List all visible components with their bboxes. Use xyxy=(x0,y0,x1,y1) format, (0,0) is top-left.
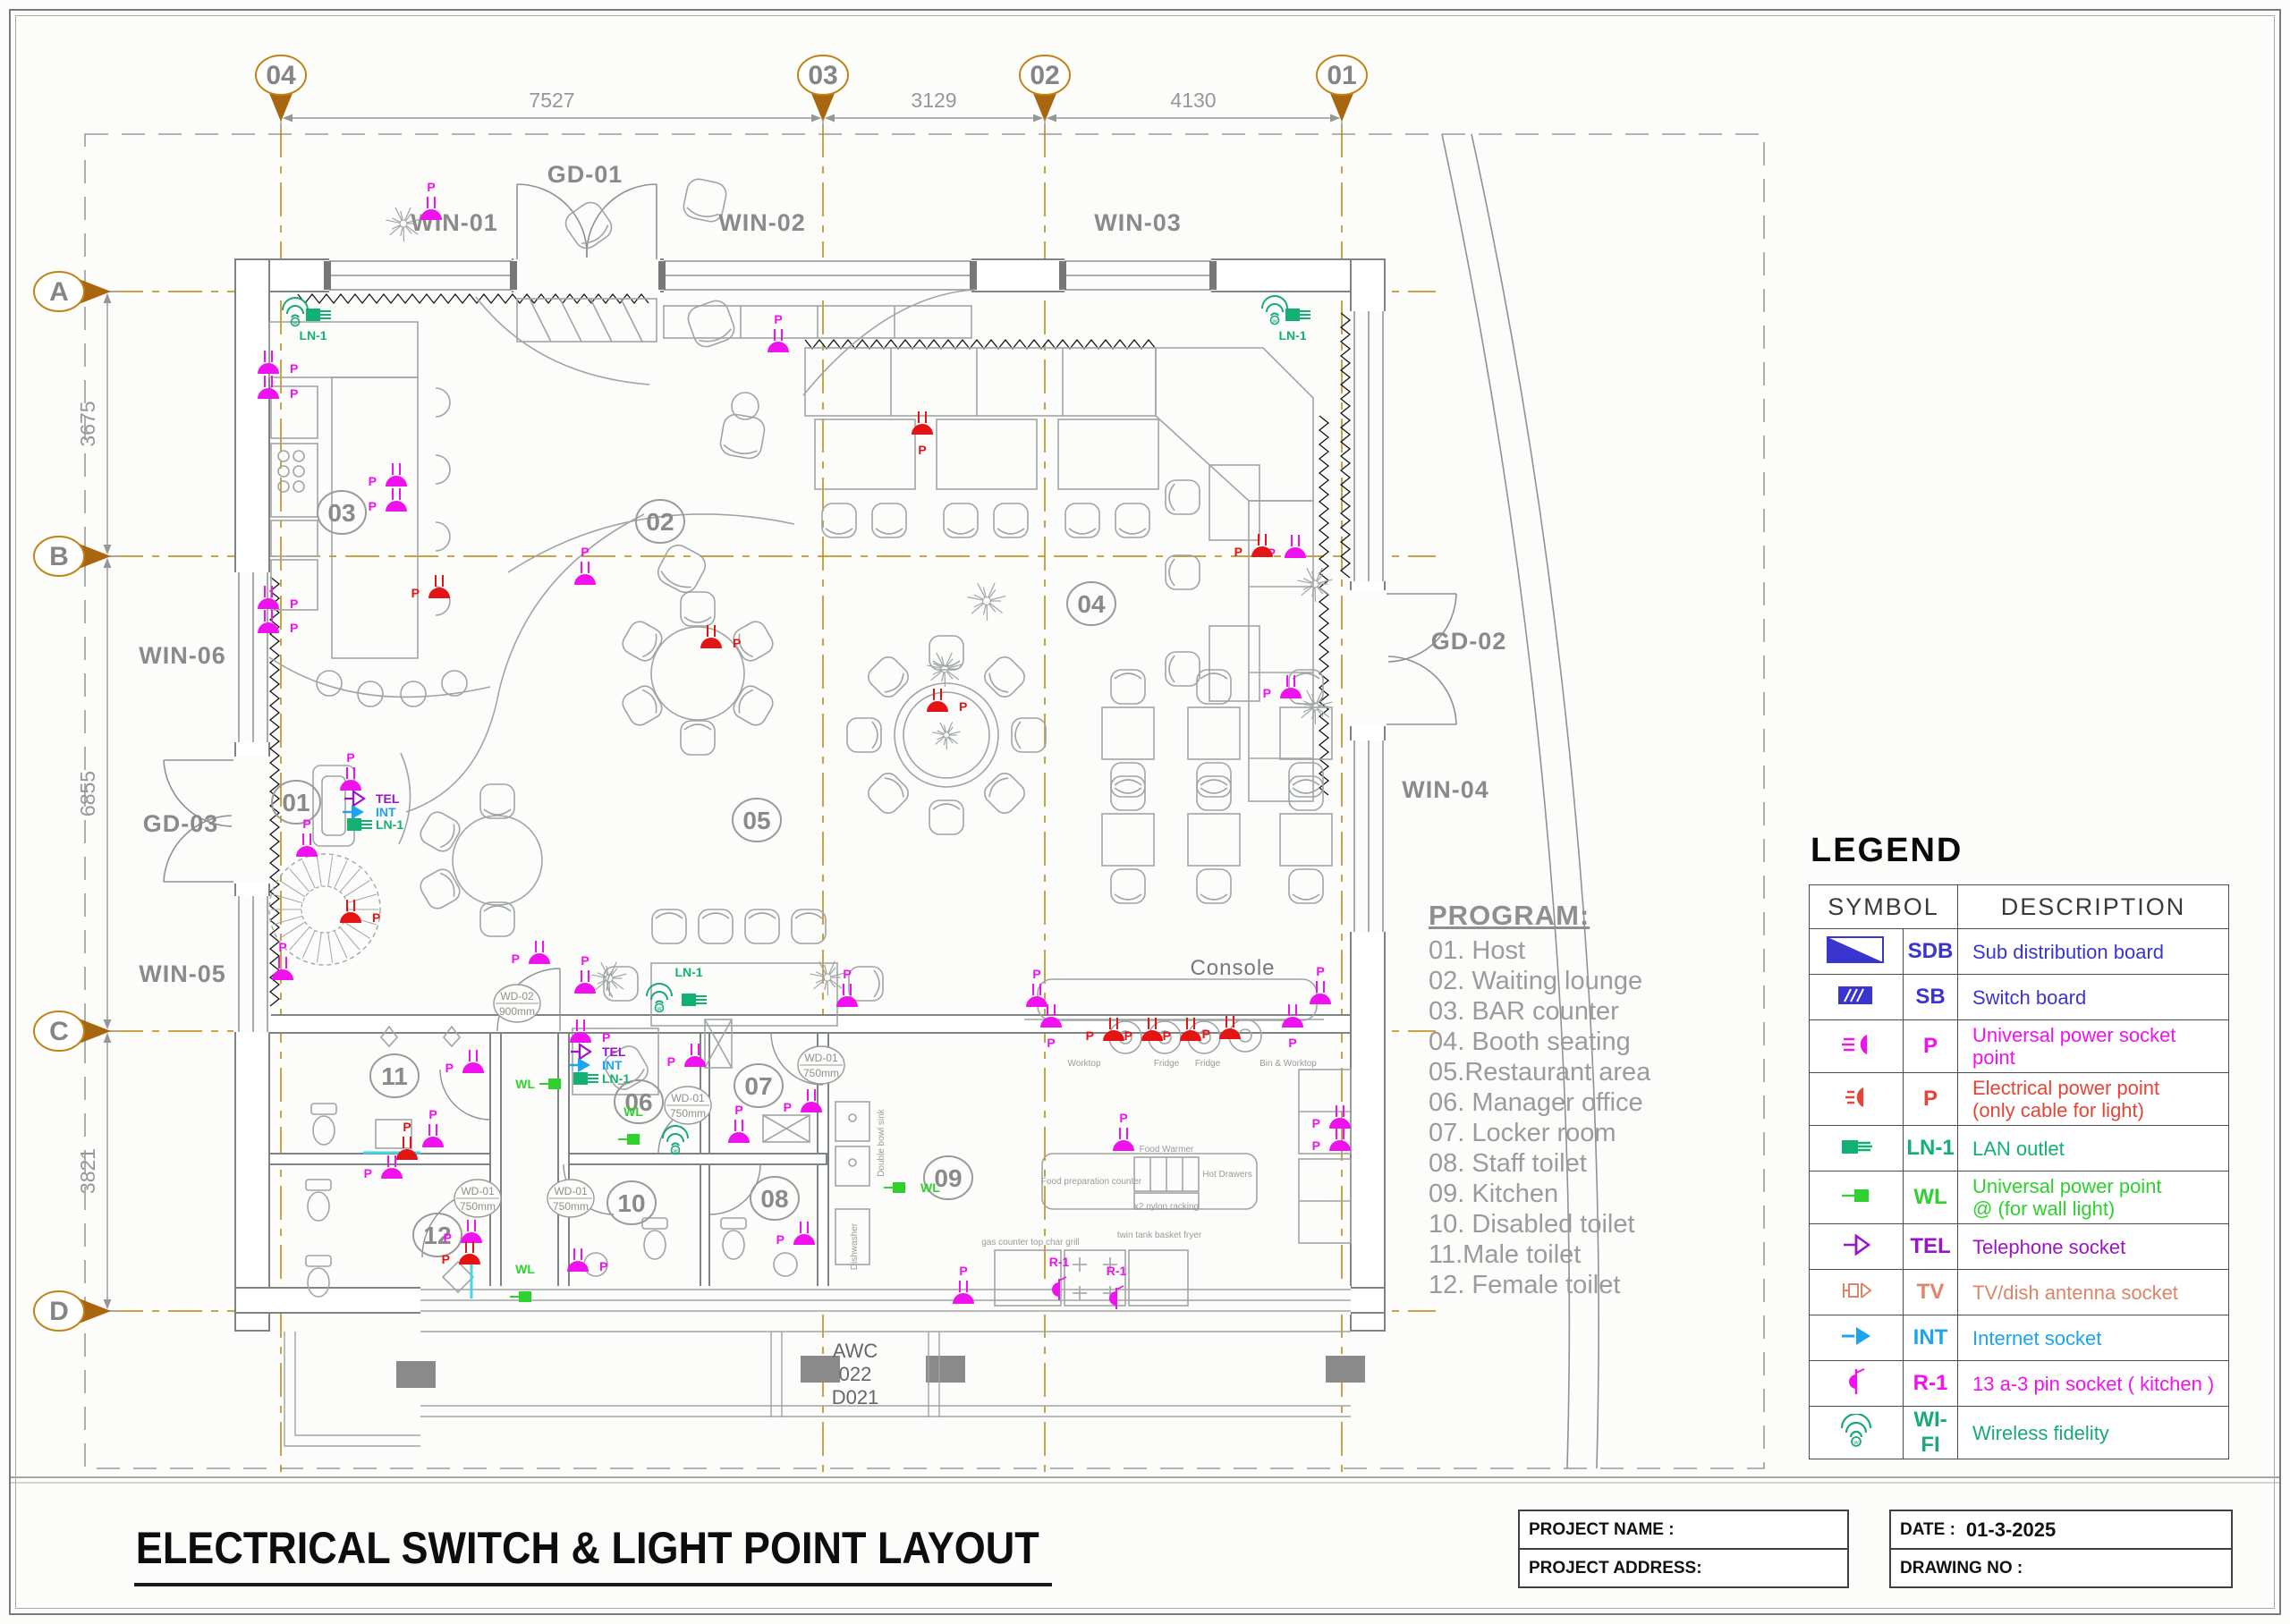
path xyxy=(795,913,822,918)
symbol-label: LN-1 xyxy=(1278,328,1306,343)
symbol-label: WL xyxy=(515,1262,535,1276)
chair xyxy=(1166,555,1200,589)
equipment-label: Double bowl sink xyxy=(877,1108,886,1177)
path xyxy=(702,913,729,918)
path xyxy=(1115,894,1141,900)
furniture-rect xyxy=(937,419,1037,489)
legend-row-sb: SBSwitch board xyxy=(1810,975,2229,1020)
path xyxy=(793,1234,815,1245)
window-post xyxy=(324,261,331,290)
rect xyxy=(872,503,906,537)
furniture-circle xyxy=(401,681,426,706)
dim-text-left: 3675 xyxy=(76,401,99,446)
chair xyxy=(417,866,463,912)
symbol-pr: P xyxy=(396,1120,418,1160)
column xyxy=(1326,1356,1365,1383)
symbol-p: P xyxy=(445,1050,484,1075)
furniture-rect xyxy=(1209,465,1259,540)
door-tag-code: WD-01 xyxy=(554,1185,588,1197)
symbol-label: P xyxy=(411,586,420,600)
symbol-label: P xyxy=(364,1166,372,1180)
line xyxy=(825,981,827,991)
symbol-p: P xyxy=(296,816,318,857)
toilet xyxy=(721,1218,746,1259)
symbol-ln: LN-1 xyxy=(674,965,707,1006)
path xyxy=(1329,1140,1351,1151)
symbol-p: P xyxy=(422,1107,444,1147)
symbol-label: P xyxy=(667,1054,675,1069)
grid-marker-label: A xyxy=(49,277,69,307)
chair xyxy=(1012,718,1046,752)
svg-text:w: w xyxy=(1853,1440,1859,1446)
equipment-label: Worktop xyxy=(1067,1059,1100,1069)
chair xyxy=(792,909,826,943)
symbol-label: P xyxy=(602,1030,610,1045)
wall xyxy=(558,1033,569,1288)
legend-heading: LEGEND xyxy=(1811,832,2231,870)
line xyxy=(1318,586,1329,595)
rect xyxy=(1111,670,1145,704)
grid-marker-label: 04 xyxy=(266,61,296,90)
entrance xyxy=(284,1332,1365,1446)
legend-description: Electrical power point(only cable for li… xyxy=(1958,1073,2229,1126)
legend-code: P xyxy=(1904,1020,1958,1073)
symbol-label: P xyxy=(784,1100,792,1114)
path xyxy=(1200,780,1227,785)
furniture-circle xyxy=(293,466,304,477)
symbol-label: P xyxy=(1047,1036,1055,1050)
symbol-wl: WL xyxy=(618,1104,643,1145)
legend-row-int: INTInternet socket xyxy=(1810,1315,2229,1361)
furniture-circle xyxy=(293,451,304,461)
rect xyxy=(1166,555,1200,589)
line xyxy=(302,860,315,888)
chair xyxy=(1197,869,1231,903)
chair xyxy=(730,682,776,729)
path xyxy=(872,722,878,749)
symbol-p: P xyxy=(574,953,596,994)
window-post xyxy=(1209,261,1217,290)
symbol-label: WL xyxy=(623,1104,643,1119)
path xyxy=(667,1134,683,1142)
rect xyxy=(1111,869,1145,903)
symbol-label: P xyxy=(734,1103,742,1117)
symbol-label: P xyxy=(290,621,298,635)
room-number-11: 11 xyxy=(381,1062,408,1090)
rect xyxy=(929,800,963,834)
symbol-label: P xyxy=(581,953,589,968)
rect xyxy=(1065,503,1099,537)
path xyxy=(1069,529,1096,534)
symbol-int: INT xyxy=(343,805,396,819)
legend-description: Wireless fidelity xyxy=(1958,1407,2229,1459)
furniture-rect xyxy=(517,299,657,342)
symbol-p: P xyxy=(1113,1111,1134,1151)
plant xyxy=(932,722,960,749)
path xyxy=(381,1168,403,1179)
symbol-p: P xyxy=(776,1222,815,1247)
rect xyxy=(519,1291,531,1302)
furniture-rect xyxy=(1280,814,1332,866)
wall xyxy=(269,1015,1351,1033)
grid-marker-label: D xyxy=(49,1297,69,1326)
furniture-path xyxy=(1156,348,1313,501)
drawing-no-label: DRAWING NO : xyxy=(1900,1559,2023,1578)
symbol-pr: P xyxy=(340,900,380,925)
symbol-label: P xyxy=(1312,1138,1320,1153)
rect xyxy=(745,909,779,943)
legend-symbol-tv-icon xyxy=(1810,1270,1904,1315)
symbol-label: P xyxy=(1316,964,1324,978)
symbol-label: P xyxy=(1288,1036,1296,1050)
legend-header-symbol: SYMBOL xyxy=(1810,885,1958,929)
symbol-label: P xyxy=(1086,1028,1094,1043)
console-label: Console xyxy=(1190,956,1275,980)
chair xyxy=(745,909,779,943)
symbol-label: P xyxy=(1163,1028,1171,1043)
rect xyxy=(822,503,856,537)
legend-code: SDB xyxy=(1904,929,1958,975)
rect xyxy=(730,682,776,729)
symbol-label: P xyxy=(403,1120,411,1134)
symbol-p: P xyxy=(512,941,550,966)
rect xyxy=(944,503,978,537)
path xyxy=(292,316,299,317)
legend-symbol-wifi-icon: w xyxy=(1810,1407,1904,1459)
path xyxy=(440,825,458,850)
rect xyxy=(306,1256,331,1266)
project-address-row: PROJECT ADDRESS: xyxy=(1520,1548,1847,1586)
path xyxy=(735,688,753,714)
symbol-label: P xyxy=(290,386,298,401)
window-post xyxy=(510,261,517,290)
legend-symbol-p-icon xyxy=(1810,1020,1904,1073)
symbol-p: P xyxy=(768,312,789,352)
path xyxy=(700,329,734,346)
symbol-label: P xyxy=(290,596,298,611)
door-swing xyxy=(440,1070,490,1120)
equipment-label: x2 nylon racking xyxy=(1134,1202,1199,1212)
path xyxy=(876,529,903,534)
chair xyxy=(1065,503,1099,537)
symbol-label: P xyxy=(302,816,310,831)
symbol-label: WL xyxy=(515,1077,535,1091)
program-item-2: 02. Waiting lounge xyxy=(1429,966,1724,996)
line xyxy=(983,605,986,615)
legend-panel: LEGEND SYMBOL DESCRIPTION SDBSub distrib… xyxy=(1809,832,2231,1459)
symbol-label: P xyxy=(959,1264,967,1278)
door-tag-size: 750mm xyxy=(803,1067,839,1079)
symbol-p: P xyxy=(369,488,407,513)
project-title-block: PROJECT NAME : PROJECT ADDRESS: xyxy=(1518,1510,1849,1588)
date-title-block: DATE : 01-3-2025 DRAWING NO : xyxy=(1889,1510,2233,1588)
symbol-label: R-1 xyxy=(1049,1255,1070,1269)
path xyxy=(1200,673,1227,679)
legend-code: TV xyxy=(1904,1270,1958,1315)
legend-symbol-int-icon xyxy=(1810,1315,1904,1361)
symbol-label: P xyxy=(1263,686,1271,700)
rect xyxy=(1166,652,1200,686)
chair xyxy=(1289,869,1323,903)
chair xyxy=(417,808,463,855)
path xyxy=(352,805,364,819)
line xyxy=(612,980,623,989)
rect xyxy=(864,769,912,817)
path xyxy=(768,342,789,352)
symbol-label: P xyxy=(428,1107,437,1121)
legend-code: WI-FI xyxy=(1904,1407,1958,1459)
furniture-circle xyxy=(651,627,744,720)
chair xyxy=(619,682,666,729)
symbol-label: P xyxy=(372,910,380,925)
path xyxy=(826,529,852,534)
rect xyxy=(681,592,715,626)
equipment-label: twin tank basket fryer xyxy=(1117,1231,1202,1240)
path xyxy=(353,791,364,806)
program-item-6: 06. Manager office xyxy=(1429,1087,1724,1118)
chair xyxy=(699,909,733,943)
symbol-label: P xyxy=(1312,1116,1320,1130)
chair xyxy=(1166,480,1200,514)
legend-code: TEL xyxy=(1904,1224,1958,1270)
legend-code: R-1 xyxy=(1904,1361,1958,1407)
chair xyxy=(1111,670,1145,704)
symbol-label: P xyxy=(1119,1111,1127,1125)
symbol-label: P xyxy=(512,952,520,966)
symbol-label: P xyxy=(1202,1027,1210,1041)
chair xyxy=(619,618,666,664)
wall xyxy=(490,1033,501,1288)
path xyxy=(1200,788,1227,793)
path xyxy=(396,1149,418,1160)
path xyxy=(728,1132,750,1143)
rect xyxy=(681,721,715,755)
path xyxy=(656,1002,663,1003)
path xyxy=(461,1232,482,1243)
symbol-p: P xyxy=(1040,1004,1062,1050)
path xyxy=(1293,780,1319,785)
program-list: PROGRAM: 01. Host02. Waiting lounge03. B… xyxy=(1429,900,1724,1300)
rect xyxy=(417,808,463,855)
path xyxy=(1267,304,1283,312)
rect xyxy=(573,1072,588,1085)
rect xyxy=(306,1180,331,1190)
line xyxy=(944,738,946,745)
column xyxy=(396,1361,436,1388)
path xyxy=(578,1058,590,1072)
dim-text-top: 7527 xyxy=(529,89,574,112)
path xyxy=(529,953,550,964)
path xyxy=(428,588,450,598)
legend-description: Telephone socket xyxy=(1958,1224,2229,1270)
rect xyxy=(1166,480,1200,514)
symbol-wl: WL xyxy=(515,1077,561,1091)
date-row: DATE : 01-3-2025 xyxy=(1891,1511,2231,1548)
symbol-tel: TEL xyxy=(571,1045,626,1059)
circle xyxy=(400,220,407,227)
ellipse xyxy=(644,1231,666,1259)
chair xyxy=(681,721,715,755)
rect xyxy=(417,866,463,912)
line xyxy=(273,894,302,903)
circle xyxy=(944,732,949,738)
furniture-circle xyxy=(278,481,289,492)
path xyxy=(1115,788,1141,793)
furniture-circle xyxy=(849,1114,856,1121)
path xyxy=(484,906,511,911)
symbol-p: P xyxy=(272,940,293,980)
symbol-label: TEL xyxy=(602,1045,626,1059)
line xyxy=(612,974,626,977)
line xyxy=(317,933,321,963)
symbol-label: P xyxy=(959,699,967,714)
electrical-symbols: PPPPPPPPPPPPPPPPPPPPPPPPPPPPPPPPPPPPPPPP… xyxy=(258,180,1351,1309)
path xyxy=(296,846,318,857)
legend-symbol-sb-icon xyxy=(1810,975,1904,1020)
line xyxy=(947,671,959,680)
door-tag-code: WD-02 xyxy=(500,990,534,1002)
line xyxy=(302,931,315,959)
project-name-label: PROJECT NAME : xyxy=(1529,1520,1675,1540)
program-item-3: 03. BAR counter xyxy=(1429,996,1724,1027)
wall xyxy=(569,1154,827,1164)
rect xyxy=(721,1218,746,1229)
furniture-rect xyxy=(1188,814,1240,866)
circle xyxy=(1311,580,1319,588)
symbol-ln: LN-1 xyxy=(573,1071,630,1086)
path xyxy=(459,1254,480,1265)
symbol-ln: LN-1 xyxy=(347,817,403,832)
rect xyxy=(849,967,883,1001)
rect xyxy=(1289,869,1323,903)
symbol-p: P xyxy=(953,1264,974,1304)
path xyxy=(672,1144,679,1146)
path xyxy=(642,634,660,660)
symbol-label: P xyxy=(776,1232,785,1247)
path xyxy=(749,913,776,918)
path xyxy=(656,913,683,918)
path xyxy=(1119,529,1146,534)
legend-symbol-wl-icon xyxy=(1810,1171,1904,1224)
rect xyxy=(652,909,686,943)
chair xyxy=(847,718,881,752)
symbol-label: P xyxy=(278,940,286,954)
symbol-label: LN-1 xyxy=(602,1071,630,1086)
grid-marker-label: 03 xyxy=(808,61,837,90)
window-post xyxy=(1059,261,1066,290)
furniture-rect xyxy=(1102,814,1154,866)
date-value: 01-3-2025 xyxy=(1966,1518,2056,1542)
insulation-zigzag xyxy=(1319,416,1328,795)
chair xyxy=(929,800,963,834)
path xyxy=(1169,484,1175,511)
furniture-rect xyxy=(1249,501,1313,801)
path xyxy=(1293,673,1319,679)
rect xyxy=(1197,869,1231,903)
rect xyxy=(980,769,1029,817)
path xyxy=(933,804,960,809)
window-post xyxy=(970,261,977,290)
symbol-label: P xyxy=(1234,545,1243,559)
grid-marker-label: B xyxy=(49,542,69,571)
equipment-label: gas counter top char grill xyxy=(981,1238,1080,1248)
rect xyxy=(654,541,709,596)
drawing-no-row: DRAWING NO : xyxy=(1891,1548,2231,1586)
chair xyxy=(994,503,1028,537)
furniture-rect xyxy=(1188,707,1240,759)
path xyxy=(1115,780,1141,785)
legend-description: TV/dish antenna socket xyxy=(1958,1270,2229,1315)
symbol-p: P xyxy=(340,750,361,791)
furniture-path xyxy=(621,299,642,342)
symbol-wifi: w xyxy=(663,1126,688,1155)
opening-label-WIN-02: WIN-02 xyxy=(718,209,806,236)
furniture-rect xyxy=(1102,707,1154,759)
symbol-p: P xyxy=(728,1103,750,1143)
wifi-w: w xyxy=(292,320,298,326)
line xyxy=(347,894,377,903)
line xyxy=(942,672,944,682)
symbol-label: P xyxy=(369,499,377,513)
opening-label-WIN-03: WIN-03 xyxy=(1094,209,1182,236)
wall xyxy=(700,1164,709,1288)
furniture-path xyxy=(499,514,644,690)
project-address-label: PROJECT ADDRESS: xyxy=(1529,1559,1702,1578)
symbol-p: P xyxy=(420,180,442,220)
path xyxy=(422,1137,444,1147)
chair xyxy=(1115,503,1149,537)
grid-marker-label: C xyxy=(49,1017,69,1046)
dim-text-left: 3821 xyxy=(76,1148,99,1194)
rect xyxy=(480,784,514,818)
symbol-label: WL xyxy=(920,1180,940,1195)
rect xyxy=(1115,503,1149,537)
symbol-label: P xyxy=(445,1061,454,1075)
rect xyxy=(792,909,826,943)
path xyxy=(440,871,458,897)
furniture-path xyxy=(590,299,612,342)
line xyxy=(989,603,1002,613)
path xyxy=(1329,1118,1351,1129)
rect xyxy=(682,994,696,1006)
chair xyxy=(980,769,1029,817)
symbol-pr: P xyxy=(411,575,450,600)
legend-row-p: PUniversal power socket point xyxy=(1810,1020,2229,1073)
symbol-p: P xyxy=(369,463,407,488)
path xyxy=(1200,894,1227,900)
program-item-10: 10. Disabled toilet xyxy=(1429,1209,1724,1239)
rect xyxy=(311,1104,336,1114)
legend-row-tv: TVTV/dish antenna socket xyxy=(1810,1270,2229,1315)
room-number-01: 01 xyxy=(282,789,310,816)
awc-label: 022 xyxy=(839,1363,872,1385)
door-tag-code: WD-01 xyxy=(671,1092,705,1104)
path xyxy=(1280,688,1302,698)
rect xyxy=(619,618,666,664)
path xyxy=(1113,1140,1134,1151)
legend-description: LAN outlet xyxy=(1958,1126,2229,1171)
door-leaf xyxy=(1388,656,1456,724)
program-item-12: 12. Female toilet xyxy=(1429,1270,1724,1300)
equipment-label: Food preparation counter xyxy=(1041,1177,1142,1187)
zigzag xyxy=(270,294,1350,1006)
grid-marker-label: 01 xyxy=(1327,61,1356,90)
furniture-path xyxy=(406,690,499,812)
drawing-sheet: 75273129413036756855382104030201ABCDWIN-… xyxy=(0,0,2290,1624)
program-item-5: 05.Restaurant area xyxy=(1429,1057,1724,1087)
program-item-4: 04. Booth seating xyxy=(1429,1027,1724,1057)
door-tag-size: 750mm xyxy=(553,1200,589,1213)
